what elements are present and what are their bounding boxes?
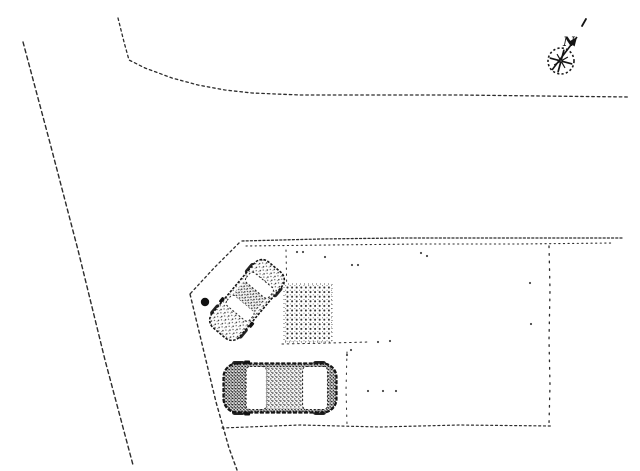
paved-approach-area <box>284 284 332 342</box>
site-plan-canvas: N <box>0 0 640 471</box>
sketch-dot <box>351 264 353 266</box>
sketch-dot <box>426 255 428 257</box>
plot-top-edge-inner <box>246 243 612 246</box>
road-west-edge <box>23 42 133 465</box>
paved-area-layer <box>284 284 332 342</box>
boundary-survey-marker <box>201 298 209 306</box>
sketch-dot <box>420 252 422 254</box>
sketch-dot <box>530 323 532 325</box>
car-horizontal <box>224 361 337 416</box>
sketch-dot <box>529 282 531 284</box>
compass-spoke <box>558 62 561 71</box>
plot-right-edge <box>549 246 550 424</box>
site-plan-image: N <box>0 0 640 471</box>
sketch-dot <box>367 390 369 392</box>
plot-bottom-edge <box>222 425 551 428</box>
car-windshield <box>246 367 266 410</box>
compass-circle <box>548 48 574 74</box>
car-mirror <box>244 412 250 415</box>
north-arrow-tick <box>582 19 586 26</box>
car-mirror <box>244 361 250 364</box>
car-roof <box>266 368 302 409</box>
sketch-dot <box>377 341 379 343</box>
sketch-dot <box>357 264 359 266</box>
sketch-dot <box>324 256 326 258</box>
compass-spoke <box>562 61 571 64</box>
compass-spoke <box>562 62 565 67</box>
compass-spoke <box>562 57 567 60</box>
survey-marker-layer <box>201 298 209 306</box>
sketch-dot <box>302 251 304 253</box>
sketch-dot <box>395 390 397 392</box>
plot-top-edge-outer <box>242 238 622 241</box>
terrace-left-edge <box>346 352 347 424</box>
plot-chamfer-edge <box>190 243 239 294</box>
sketch-dot <box>296 251 298 253</box>
north-boundary <box>118 18 630 97</box>
car-angled <box>203 254 290 347</box>
sketch-dot <box>346 354 348 356</box>
sketch-dot <box>350 349 352 351</box>
sketch-dot <box>382 390 384 392</box>
compass-rose: N <box>548 19 586 74</box>
car-rear-window <box>303 367 328 410</box>
sketch-dot <box>389 340 391 342</box>
